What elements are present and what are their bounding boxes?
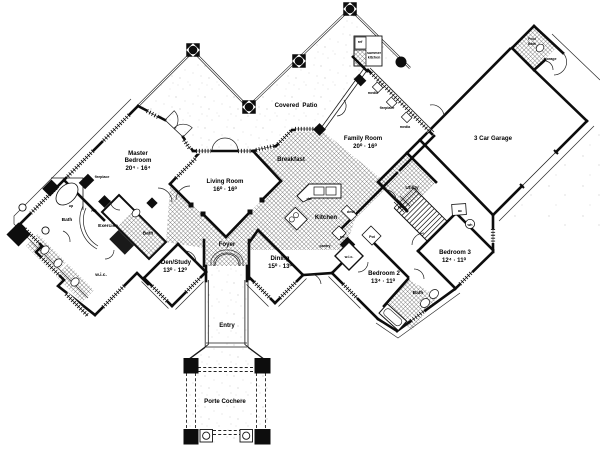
svg-text:Bath: Bath	[413, 290, 424, 296]
svg-text:15⁰ · 13⁰: 15⁰ · 13⁰	[268, 263, 292, 270]
svg-text:Family Room: Family Room	[344, 135, 383, 142]
svg-text:Master: Master	[128, 150, 148, 157]
svg-text:media: media	[400, 125, 411, 129]
svg-text:Living Room: Living Room	[207, 178, 244, 185]
svg-text:kitchen: kitchen	[368, 56, 381, 60]
svg-text:13⁰ · 12⁰: 13⁰ · 12⁰	[163, 267, 187, 274]
svg-text:w.i.c.: w.i.c.	[344, 255, 354, 259]
svg-text:pantry: pantry	[320, 244, 331, 248]
svg-text:wh: wh	[467, 223, 473, 227]
svg-text:Entry: Entry	[219, 322, 235, 329]
svg-text:Exercise: Exercise	[98, 223, 118, 229]
svg-text:Utility: Utility	[405, 185, 419, 191]
svg-text:Kitchen: Kitchen	[315, 214, 338, 221]
svg-text:Dining: Dining	[271, 255, 290, 262]
svg-text:Bath: Bath	[62, 217, 73, 223]
svg-text:Bedroom 3: Bedroom 3	[439, 249, 471, 256]
svg-text:fireplace: fireplace	[95, 175, 110, 179]
svg-text:Porte Cochere: Porte Cochere	[204, 398, 246, 405]
svg-text:ac: ac	[458, 209, 462, 213]
svg-text:storage: storage	[544, 57, 557, 61]
svg-text:HB: HB	[91, 209, 97, 213]
svg-text:fireplace: fireplace	[380, 106, 395, 110]
svg-text:Covered Patio: Covered Patio	[275, 102, 318, 109]
svg-text:3 Car Garage: 3 Car Garage	[474, 135, 513, 142]
svg-text:media: media	[368, 91, 379, 95]
svg-text:Bedroom 2: Bedroom 2	[368, 270, 400, 277]
svg-text:Bath: Bath	[143, 231, 154, 237]
svg-text:ref: ref	[340, 235, 345, 239]
svg-text:desk: desk	[347, 210, 355, 214]
svg-text:Den/Study: Den/Study	[161, 259, 192, 266]
svg-text:Pool: Pool	[528, 37, 536, 41]
svg-text:12⁴ · 11⁰: 12⁴ · 11⁰	[442, 257, 467, 264]
svg-text:Pot: Pot	[369, 235, 376, 239]
svg-text:Breakfast: Breakfast	[277, 156, 305, 163]
svg-text:20⁴ · 16⁴: 20⁴ · 16⁴	[126, 165, 151, 172]
svg-text:ref: ref	[358, 40, 363, 44]
svg-text:Foyer: Foyer	[219, 241, 236, 248]
svg-text:Bath: Bath	[528, 42, 536, 46]
svg-text:20⁰ · 16⁰: 20⁰ · 16⁰	[353, 143, 377, 150]
svg-text:Bedroom: Bedroom	[125, 157, 152, 164]
svg-text:13⁴ · 11⁰: 13⁴ · 11⁰	[371, 278, 396, 285]
svg-text:16⁰ · 16⁰: 16⁰ · 16⁰	[213, 186, 237, 193]
svg-text:summer: summer	[367, 51, 382, 55]
svg-text:w.i.c.: w.i.c.	[94, 272, 107, 278]
svg-text:dw: dw	[307, 197, 312, 201]
